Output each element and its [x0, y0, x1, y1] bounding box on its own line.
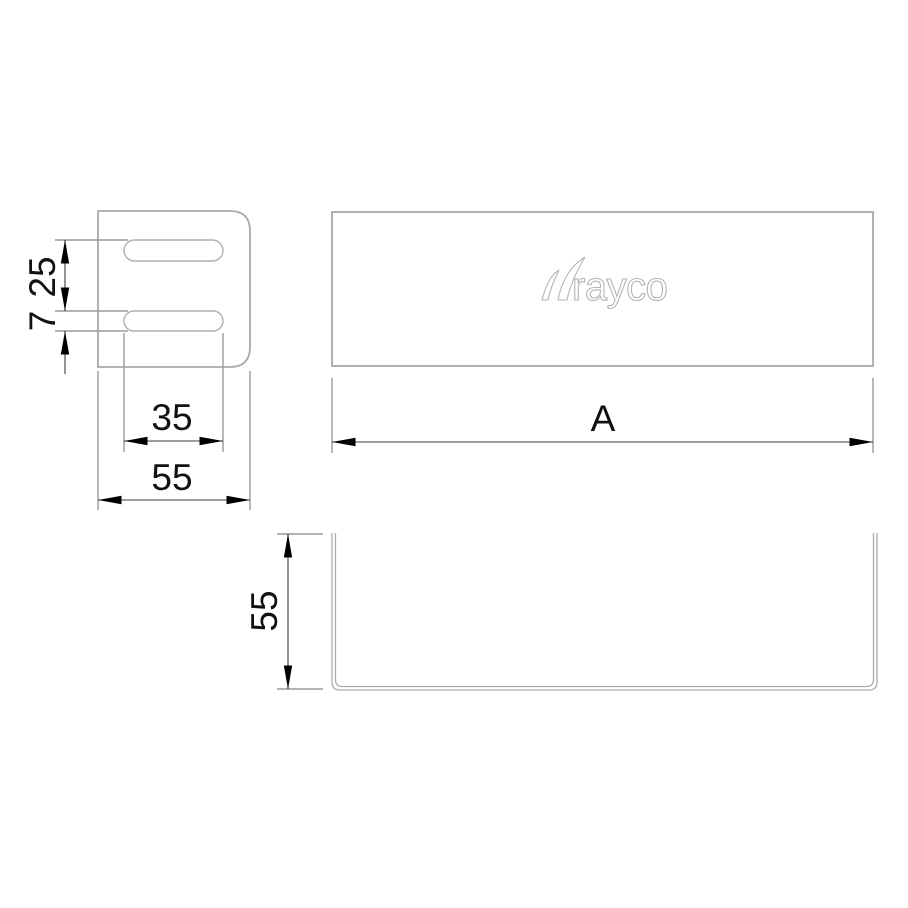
- channel-inner-contour: [336, 533, 874, 687]
- drawing-canvas: 25 7 35 55 rayco: [0, 0, 908, 908]
- trayco-logo-letters: rayco: [572, 265, 667, 309]
- side-view: [98, 211, 250, 367]
- technical-drawing: 25 7 35 55 rayco: [0, 0, 908, 908]
- lower-slot: [124, 311, 223, 331]
- dim-label-slot-length: 35: [151, 397, 192, 438]
- trayco-logo: rayco: [542, 257, 667, 309]
- dim-label-channel-height: 55: [244, 590, 285, 631]
- dim-label-plate-width: 55: [151, 457, 192, 498]
- side-view-outline: [98, 211, 250, 367]
- top-view: rayco: [332, 212, 873, 366]
- dim-label-length: A: [591, 398, 616, 439]
- front-view: [332, 533, 877, 690]
- top-view-length-dimension: A: [332, 378, 873, 453]
- side-view-left-dimensions: 25 7: [22, 240, 128, 374]
- upper-slot: [124, 240, 223, 261]
- side-view-slot-length-dimension: 35: [124, 333, 223, 452]
- channel-outer-contour: [332, 533, 877, 690]
- dim-label-slot-height: 7: [22, 311, 63, 332]
- dim-label-slot-pitch: 25: [22, 256, 63, 297]
- trayco-logo-t-swoosh-small: [542, 270, 559, 300]
- front-view-height-dimension: 55: [244, 534, 323, 689]
